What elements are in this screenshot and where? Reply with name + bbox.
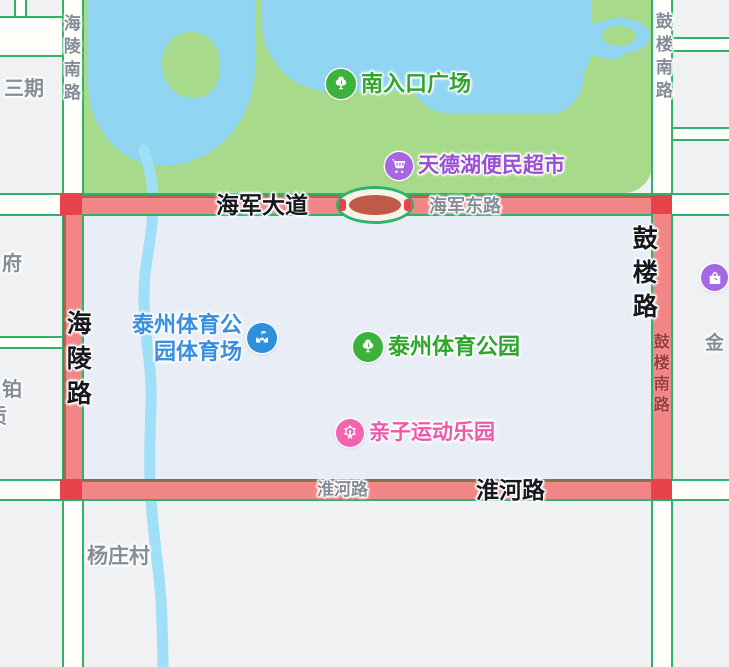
road-label-haijun-east: 海军东路: [429, 197, 501, 216]
place-label-sanqi: 三期: [4, 79, 44, 100]
place-label-partial: 质: [0, 407, 7, 428]
pond-island: [602, 26, 636, 46]
boundary-corner-tr: [651, 195, 672, 214]
ferris-wheel-icon: [336, 419, 364, 447]
cart-icon: [385, 152, 413, 180]
road-label-huaihe-gray: 淮河路: [317, 481, 368, 499]
poi-supermarket[interactable]: 天德湖便民超市: [385, 152, 565, 180]
road-label-haijun-avenue: 海军大道: [216, 193, 308, 217]
map-canvas[interactable]: 海陵南路 海陵路 海军大道 海军东路 鼓楼南路 鼓楼路 鼓楼南路 淮河路 淮河路…: [0, 0, 729, 667]
poi-label: 泰州体育公园: [388, 334, 520, 359]
roundabout-tick-right: [404, 199, 411, 211]
road-east-1: [672, 37, 729, 52]
road-label-gulou-south-top: 鼓楼南路: [653, 12, 671, 104]
road-label-hailing-south: 海陵南路: [61, 14, 79, 106]
poi-label: 泰州体育公 园体育场: [104, 311, 242, 365]
poi-label: 天德湖便民超市: [418, 154, 565, 178]
road-west-2: [0, 336, 63, 349]
road-east-2: [672, 127, 729, 141]
lake-island: [162, 32, 220, 98]
road-stub-topleft: [14, 0, 27, 17]
poi-label: 南入口广场: [361, 71, 471, 96]
roundabout-center: [349, 195, 401, 215]
poi-south-entrance[interactable]: 南入口广场: [326, 69, 471, 99]
place-label-yangzhuang: 杨庄村: [87, 546, 150, 568]
poi-stadium[interactable]: 泰州体育公 园体育场: [104, 311, 277, 365]
poi-shop-east[interactable]: [701, 264, 728, 291]
place-label-fu: 府: [2, 254, 22, 275]
place-label-bo: 铂: [2, 380, 22, 401]
boundary-corner-br: [651, 479, 672, 500]
boundary-corner-tl: [60, 193, 82, 215]
poi-kids-park[interactable]: 亲子运动乐园: [336, 419, 495, 447]
poi-sports-park[interactable]: 泰州体育公园: [353, 332, 520, 362]
tree-icon: [326, 69, 356, 99]
road-label-huaihe-bold: 淮河路: [476, 478, 545, 502]
poi-label: 亲子运动乐园: [369, 421, 495, 445]
shopping-bag-icon: [701, 264, 728, 291]
road-label-hailing: 海陵路: [64, 310, 90, 415]
place-label-jin: 金: [705, 334, 724, 354]
stadium-icon: [247, 323, 277, 353]
road-label-gulou: 鼓楼路: [630, 225, 656, 327]
tree-icon: [353, 332, 383, 362]
road-label-gulou-south-mid: 鼓楼南路: [650, 333, 667, 417]
boundary-corner-bl: [60, 479, 82, 500]
roundabout-tick-left: [339, 199, 346, 211]
road-west-1: [0, 16, 63, 57]
